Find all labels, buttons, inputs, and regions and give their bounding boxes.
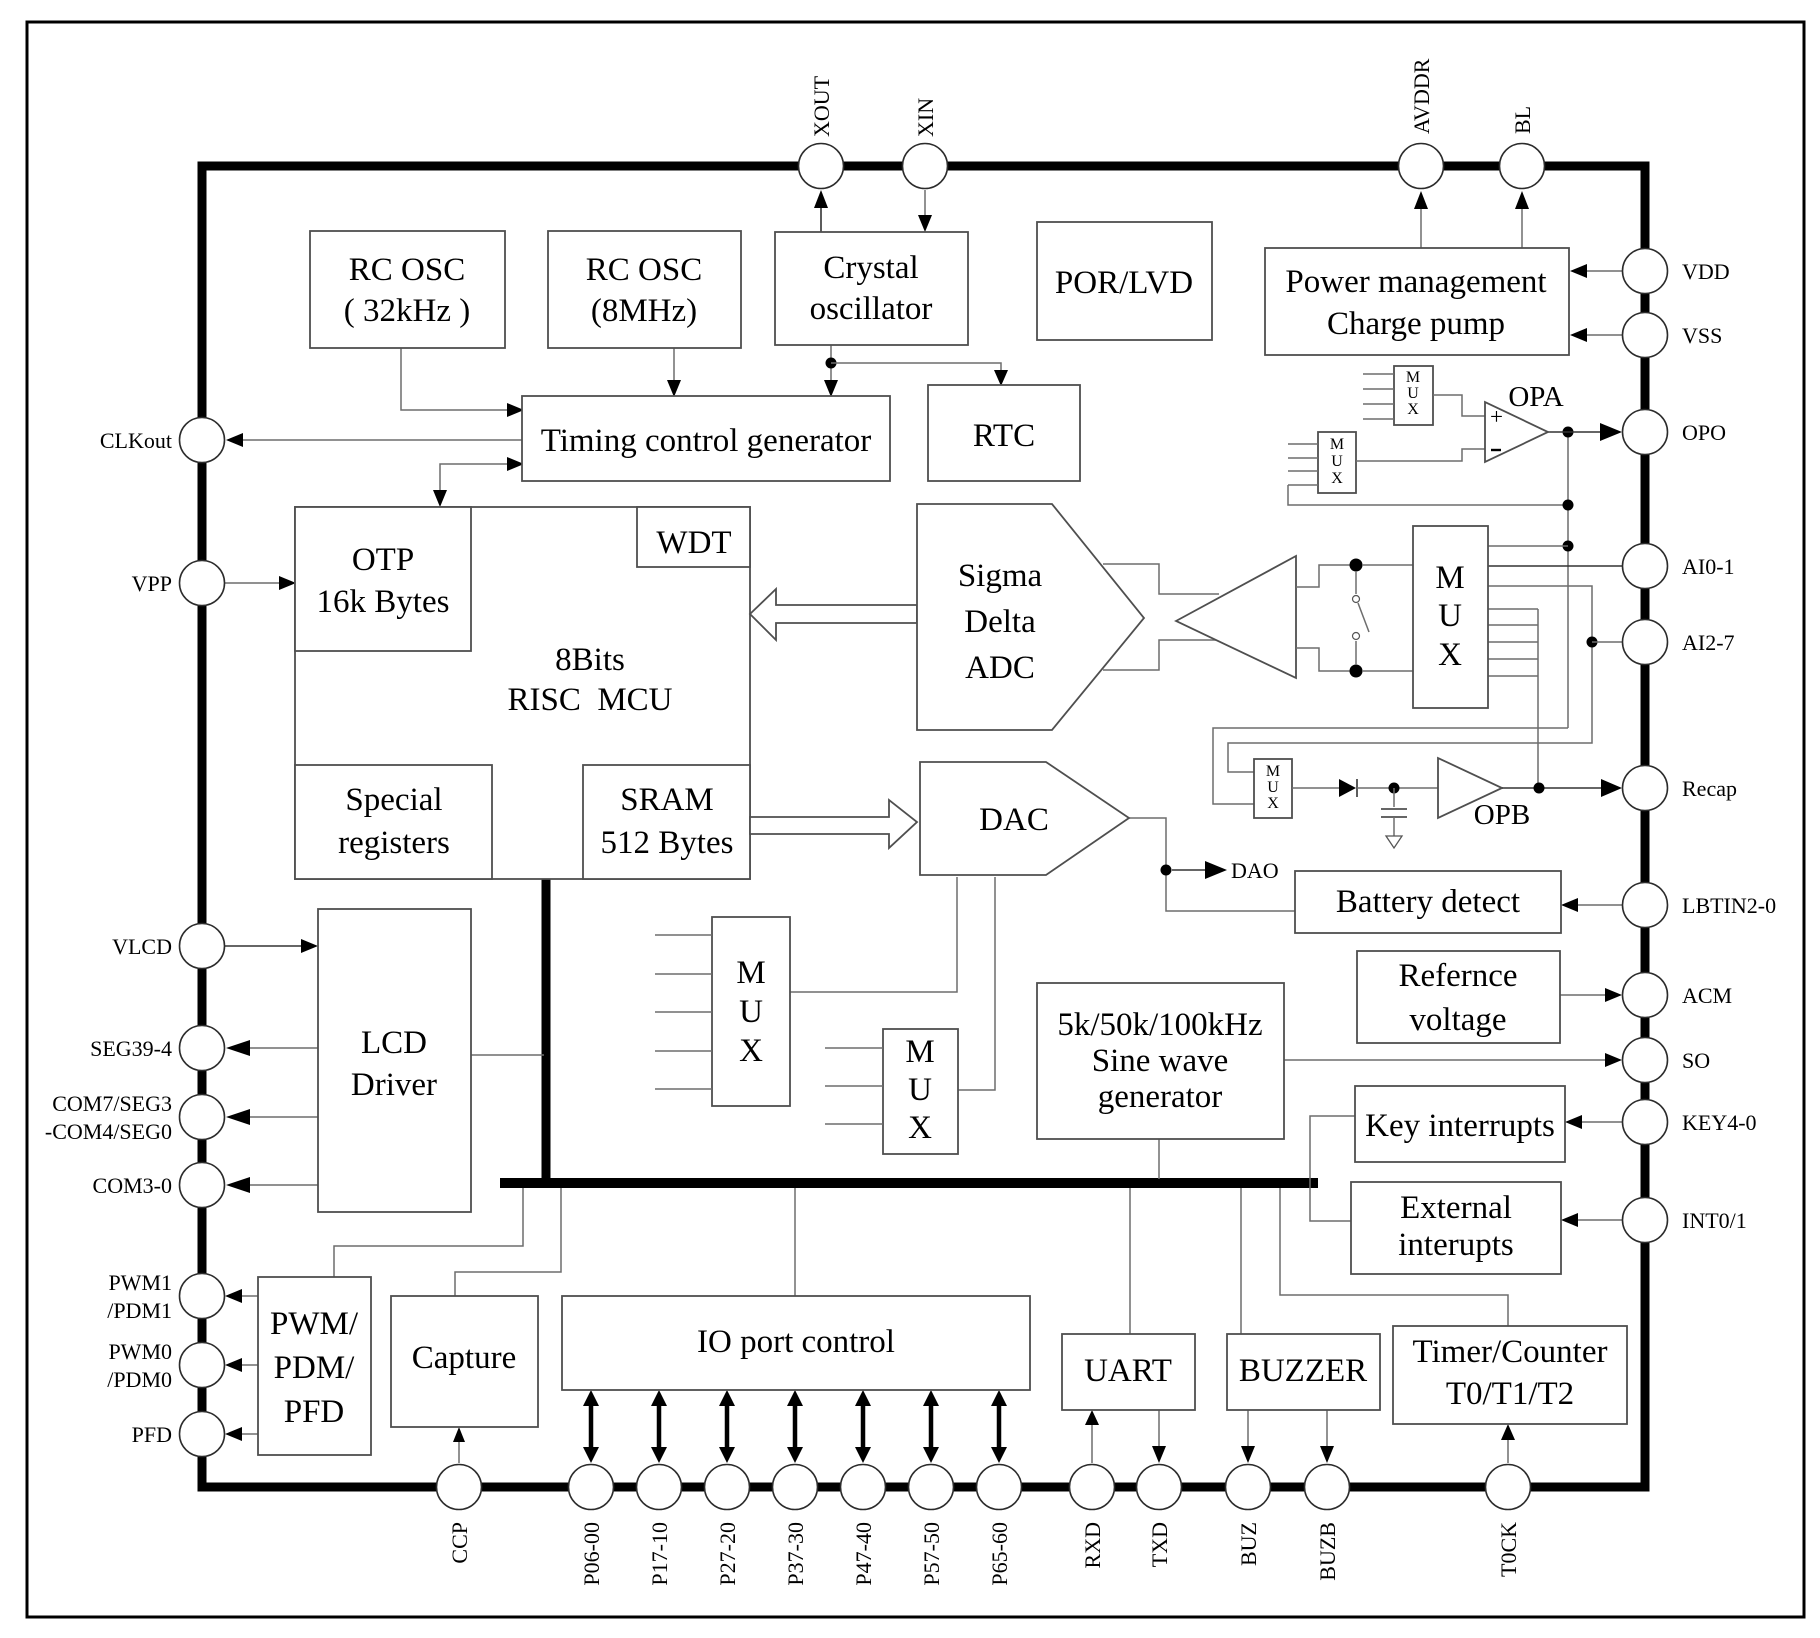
svg-text:P47-40: P47-40	[851, 1522, 876, 1586]
svg-text:OTP: OTP	[352, 542, 414, 578]
svg-text:ACM: ACM	[1682, 983, 1732, 1008]
svg-text:VLCD: VLCD	[112, 934, 172, 959]
svg-text:WDT: WDT	[656, 525, 731, 561]
svg-text:KEY4-0: KEY4-0	[1682, 1110, 1757, 1135]
svg-text:PFD: PFD	[284, 1394, 345, 1430]
svg-text:P06-00: P06-00	[579, 1522, 604, 1586]
svg-text:16k Bytes: 16k Bytes	[317, 584, 450, 620]
svg-text:Crystal: Crystal	[823, 250, 918, 286]
svg-text:P37-30: P37-30	[783, 1522, 808, 1586]
svg-text:Charge pump: Charge pump	[1327, 306, 1505, 342]
svg-text:512 Bytes: 512 Bytes	[601, 825, 734, 861]
svg-text:SRAM: SRAM	[620, 782, 714, 818]
svg-text:PFD: PFD	[132, 1422, 172, 1447]
svg-text:Driver: Driver	[351, 1067, 437, 1103]
svg-text:X: X	[739, 1033, 763, 1069]
svg-text:(8MHz): (8MHz)	[591, 293, 697, 329]
svg-text:PWM0: PWM0	[108, 1339, 172, 1364]
svg-text:U: U	[1407, 385, 1419, 402]
svg-text:registers: registers	[338, 825, 450, 861]
svg-text:Delta: Delta	[964, 604, 1036, 640]
svg-text:OPB: OPB	[1474, 799, 1530, 831]
svg-text:M: M	[1435, 560, 1464, 596]
svg-text:INT0/1: INT0/1	[1682, 1208, 1747, 1233]
svg-text:Timing control generator: Timing control generator	[541, 423, 872, 459]
svg-text:VPP: VPP	[132, 571, 172, 596]
svg-text:P17-10: P17-10	[647, 1522, 672, 1586]
svg-text:RISC MCU: RISC MCU	[507, 682, 672, 718]
svg-text:5k/50k/100kHz: 5k/50k/100kHz	[1057, 1007, 1262, 1043]
svg-text:U: U	[908, 1072, 932, 1108]
svg-text:SO: SO	[1682, 1048, 1710, 1073]
svg-text:AI2-7: AI2-7	[1682, 630, 1735, 655]
svg-text:P27-20: P27-20	[715, 1522, 740, 1586]
svg-text:ADC: ADC	[965, 650, 1035, 686]
svg-text:TXD: TXD	[1147, 1522, 1172, 1567]
svg-text:Battery detect: Battery detect	[1336, 884, 1520, 920]
svg-text:( 32kHz ): ( 32kHz )	[344, 293, 470, 329]
svg-text:P65-60: P65-60	[987, 1522, 1012, 1586]
svg-text:Capture: Capture	[412, 1340, 516, 1376]
svg-text:BUZB: BUZB	[1315, 1522, 1340, 1581]
svg-text:RTC: RTC	[973, 418, 1035, 454]
svg-text:XIN: XIN	[913, 98, 938, 137]
svg-text:X: X	[1407, 401, 1419, 418]
svg-text:RXD: RXD	[1080, 1522, 1105, 1568]
svg-text:U: U	[1438, 598, 1462, 634]
svg-text:Key interrupts: Key interrupts	[1365, 1108, 1555, 1144]
svg-text:VDD: VDD	[1682, 259, 1730, 284]
svg-text:XOUT: XOUT	[809, 75, 834, 137]
svg-text:U: U	[1331, 453, 1343, 470]
svg-text:External: External	[1400, 1190, 1512, 1226]
svg-text:RC OSC: RC OSC	[349, 252, 465, 288]
svg-text:OPO: OPO	[1682, 420, 1726, 445]
svg-text:8Bits: 8Bits	[555, 642, 625, 678]
svg-text:SEG39-4: SEG39-4	[90, 1036, 172, 1061]
svg-text:Sigma: Sigma	[958, 558, 1043, 594]
svg-text:Special: Special	[345, 782, 442, 818]
svg-text:U: U	[739, 994, 763, 1030]
svg-text:Timer/Counter: Timer/Counter	[1413, 1334, 1608, 1370]
svg-text:X: X	[1438, 637, 1462, 673]
svg-text:COM7/SEG3: COM7/SEG3	[52, 1091, 172, 1116]
svg-text:Sine wave: Sine wave	[1092, 1043, 1229, 1079]
svg-text:LBTIN2-0: LBTIN2-0	[1682, 893, 1776, 918]
svg-text:oscillator: oscillator	[810, 291, 933, 327]
svg-text:CLKout: CLKout	[100, 428, 172, 453]
svg-text:POR/LVD: POR/LVD	[1055, 265, 1193, 301]
svg-text:generator: generator	[1098, 1079, 1223, 1115]
svg-text:X: X	[908, 1110, 932, 1146]
svg-text:CCP: CCP	[447, 1522, 472, 1564]
svg-text:M: M	[736, 955, 765, 991]
svg-text:+: +	[1490, 404, 1503, 429]
svg-text:OPA: OPA	[1508, 381, 1563, 413]
svg-text:X: X	[1331, 470, 1343, 487]
svg-text:DAC: DAC	[979, 802, 1049, 838]
svg-text:/PDM0: /PDM0	[107, 1367, 172, 1392]
svg-text:M: M	[1406, 369, 1420, 386]
svg-text:P57-50: P57-50	[919, 1522, 944, 1586]
svg-text:U: U	[1267, 779, 1279, 796]
svg-text:VSS: VSS	[1682, 323, 1722, 348]
svg-text:-COM4/SEG0: -COM4/SEG0	[45, 1119, 172, 1144]
svg-text:BL: BL	[1510, 106, 1535, 134]
svg-text:M: M	[1266, 763, 1280, 780]
svg-text:IO port control: IO port control	[697, 1324, 895, 1360]
svg-text:PWM1: PWM1	[108, 1270, 172, 1295]
svg-text:Power management: Power management	[1285, 264, 1546, 300]
svg-text:COM3-0: COM3-0	[93, 1173, 172, 1198]
svg-text:T0CK: T0CK	[1496, 1522, 1521, 1577]
svg-text:M: M	[905, 1034, 934, 1070]
svg-text:X: X	[1267, 795, 1279, 812]
svg-text:PDM/: PDM/	[274, 1350, 356, 1386]
svg-text:DAO: DAO	[1231, 858, 1279, 883]
svg-text:M: M	[1330, 436, 1344, 453]
svg-text:LCD: LCD	[361, 1025, 427, 1061]
svg-text:AI0-1: AI0-1	[1682, 554, 1735, 579]
svg-text:UART: UART	[1084, 1353, 1172, 1389]
svg-text:/PDM1: /PDM1	[107, 1298, 172, 1323]
svg-text:T0/T1/T2: T0/T1/T2	[1446, 1376, 1574, 1412]
svg-text:PWM/: PWM/	[270, 1306, 359, 1342]
svg-text:Recap: Recap	[1682, 776, 1737, 801]
svg-text:interupts: interupts	[1398, 1227, 1513, 1263]
svg-text:BUZZER: BUZZER	[1239, 1353, 1367, 1389]
svg-text:AVDDR: AVDDR	[1409, 58, 1434, 134]
svg-text:RC OSC: RC OSC	[586, 252, 702, 288]
svg-text:BUZ: BUZ	[1236, 1522, 1261, 1566]
svg-text:voltage: voltage	[1409, 1002, 1506, 1038]
svg-text:Refernce: Refernce	[1398, 958, 1517, 994]
